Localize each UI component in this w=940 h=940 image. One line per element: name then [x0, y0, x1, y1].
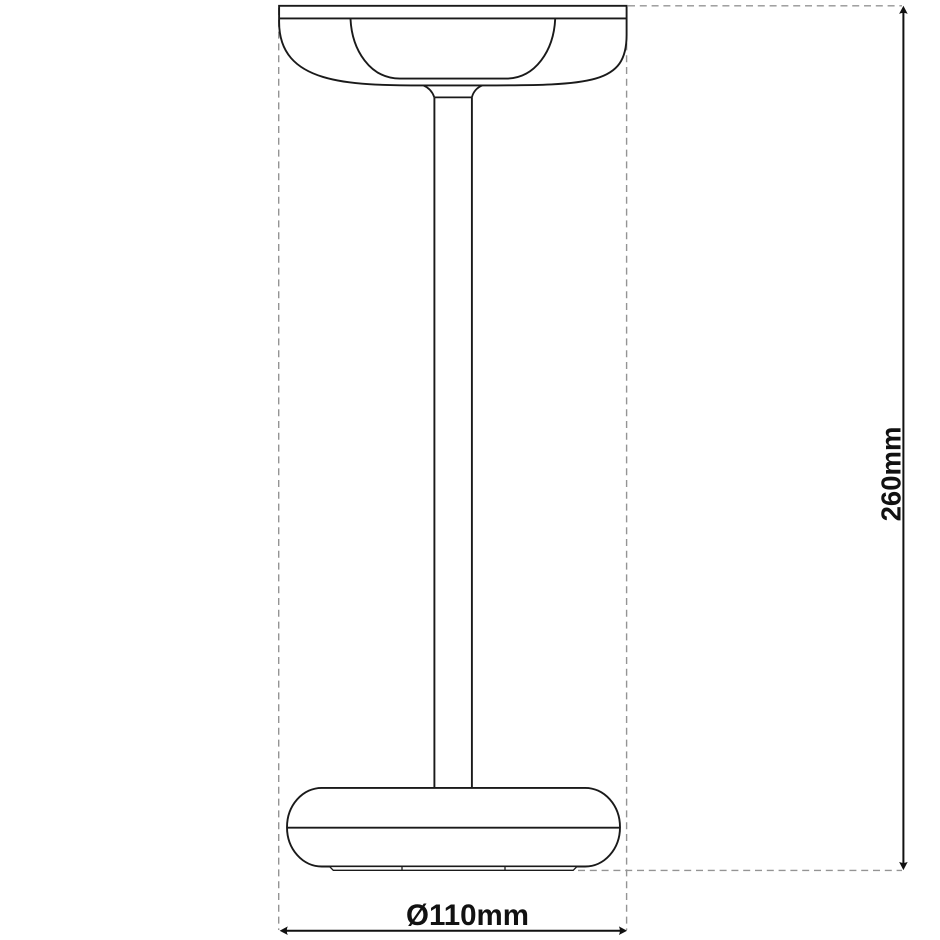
- svg-text:260mm: 260mm: [875, 427, 906, 522]
- svg-text:Ø110mm: Ø110mm: [406, 899, 529, 932]
